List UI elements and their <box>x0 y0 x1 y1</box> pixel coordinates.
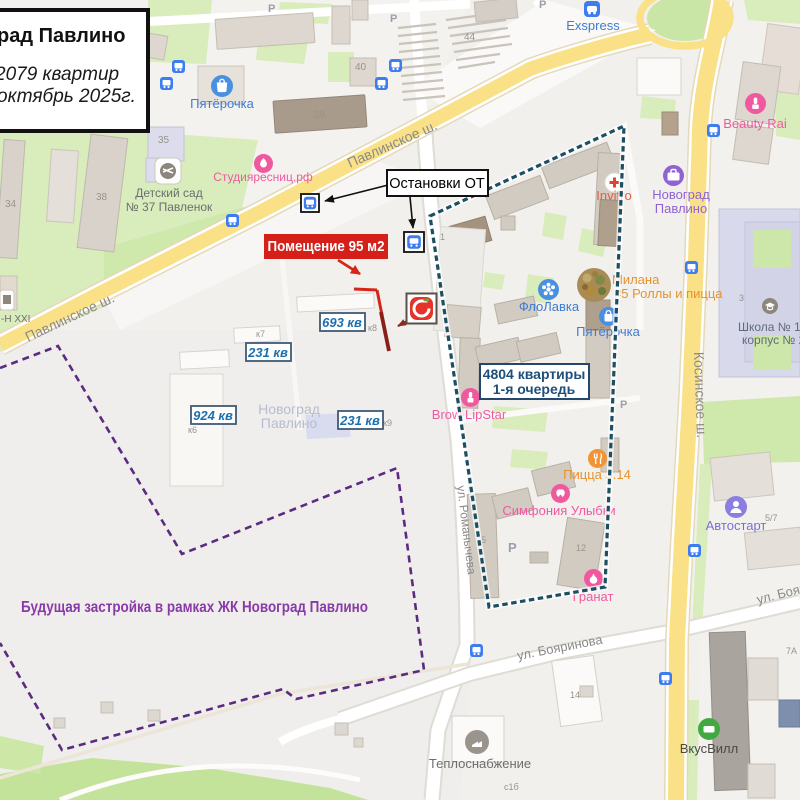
svg-text:№ 37 Павленок: № 37 Павленок <box>126 200 213 214</box>
svg-text:Детский сад: Детский сад <box>135 186 202 200</box>
svg-text:12: 12 <box>576 543 586 553</box>
svg-text:34: 34 <box>5 199 17 210</box>
svg-text:-Н XXI: -Н XXI <box>1 314 30 325</box>
svg-text:Пятёрочка: Пятёрочка <box>576 324 640 339</box>
svg-text:3: 3 <box>739 293 744 303</box>
svg-text:2079 квартир: 2079 квартир <box>0 64 119 85</box>
svg-text:7А: 7А <box>786 646 797 656</box>
svg-text:к9: к9 <box>383 418 392 428</box>
svg-text:Brow LipStar: Brow LipStar <box>432 407 507 422</box>
svg-text:октябрь 2025г.: октябрь 2025г. <box>0 86 136 107</box>
svg-text:Симфония Улыбки: Симфония Улыбки <box>502 503 615 518</box>
svg-text:Пицца 3.14: Пицца 3.14 <box>563 467 631 482</box>
svg-text:Остановки ОТ: Остановки ОТ <box>389 176 485 192</box>
svg-text:корпус № 2: корпус № 2 <box>742 333 800 347</box>
svg-text:к6: к6 <box>188 425 197 435</box>
svg-text:Пятёрочка: Пятёрочка <box>190 96 254 111</box>
svg-text:к8: к8 <box>368 323 377 333</box>
svg-text:5/7: 5/7 <box>765 513 778 523</box>
svg-text:1-я очередь: 1-я очередь <box>493 381 576 397</box>
svg-text:рад Павлино: рад Павлино <box>0 25 125 47</box>
svg-text:Exspress: Exspress <box>566 18 620 33</box>
svg-text:39: 39 <box>314 110 326 121</box>
svg-text:924 кв: 924 кв <box>193 408 233 423</box>
svg-text:Помещение 95 м2: Помещение 95 м2 <box>268 239 385 255</box>
svg-text:Р: Р <box>508 540 517 555</box>
svg-text:Invitro: Invitro <box>596 188 631 203</box>
svg-text:ФлоЛавка: ФлоЛавка <box>519 299 580 314</box>
svg-text:231 кв: 231 кв <box>247 345 288 360</box>
svg-text:1: 1 <box>440 232 445 242</box>
svg-text:Павлино: Павлино <box>261 415 318 431</box>
svg-text:Р: Р <box>268 3 275 15</box>
svg-text:ВкусВилл: ВкусВилл <box>680 741 738 756</box>
svg-text:с1б: с1б <box>504 782 519 792</box>
svg-text:40: 40 <box>355 62 367 73</box>
svg-text:35: 35 <box>158 135 170 146</box>
svg-text:231 кв: 231 кв <box>339 413 380 428</box>
svg-text:38: 38 <box>96 192 108 203</box>
svg-text:Р: Р <box>620 399 627 411</box>
svg-text:Косинское ш.: Косинское ш. <box>691 352 710 439</box>
svg-text:#5 Роллы и пицца: #5 Роллы и пицца <box>614 286 723 301</box>
svg-text:Теплоснабжение: Теплоснабжение <box>429 756 531 771</box>
svg-text:Школа № 12: Школа № 12 <box>738 320 800 334</box>
svg-text:к7: к7 <box>256 329 265 339</box>
svg-text:Павлино: Павлино <box>655 201 707 216</box>
svg-text:Р: Р <box>539 0 546 11</box>
svg-text:693 кв: 693 кв <box>322 315 362 330</box>
svg-text:Автостарт: Автостарт <box>706 518 767 533</box>
svg-text:4804 квартиры: 4804 квартиры <box>483 366 586 382</box>
svg-text:Р: Р <box>390 13 397 25</box>
svg-text:44: 44 <box>464 32 476 43</box>
svg-text:Новоград: Новоград <box>652 187 710 202</box>
svg-text:14: 14 <box>570 690 580 700</box>
svg-text:Студияресниц.рф: Студияресниц.рф <box>213 170 313 184</box>
svg-text:Beauty Rai: Beauty Rai <box>723 116 787 131</box>
svg-text:Будущая застройка в рамках ЖК: Будущая застройка в рамках ЖК Новоград П… <box>21 599 368 616</box>
